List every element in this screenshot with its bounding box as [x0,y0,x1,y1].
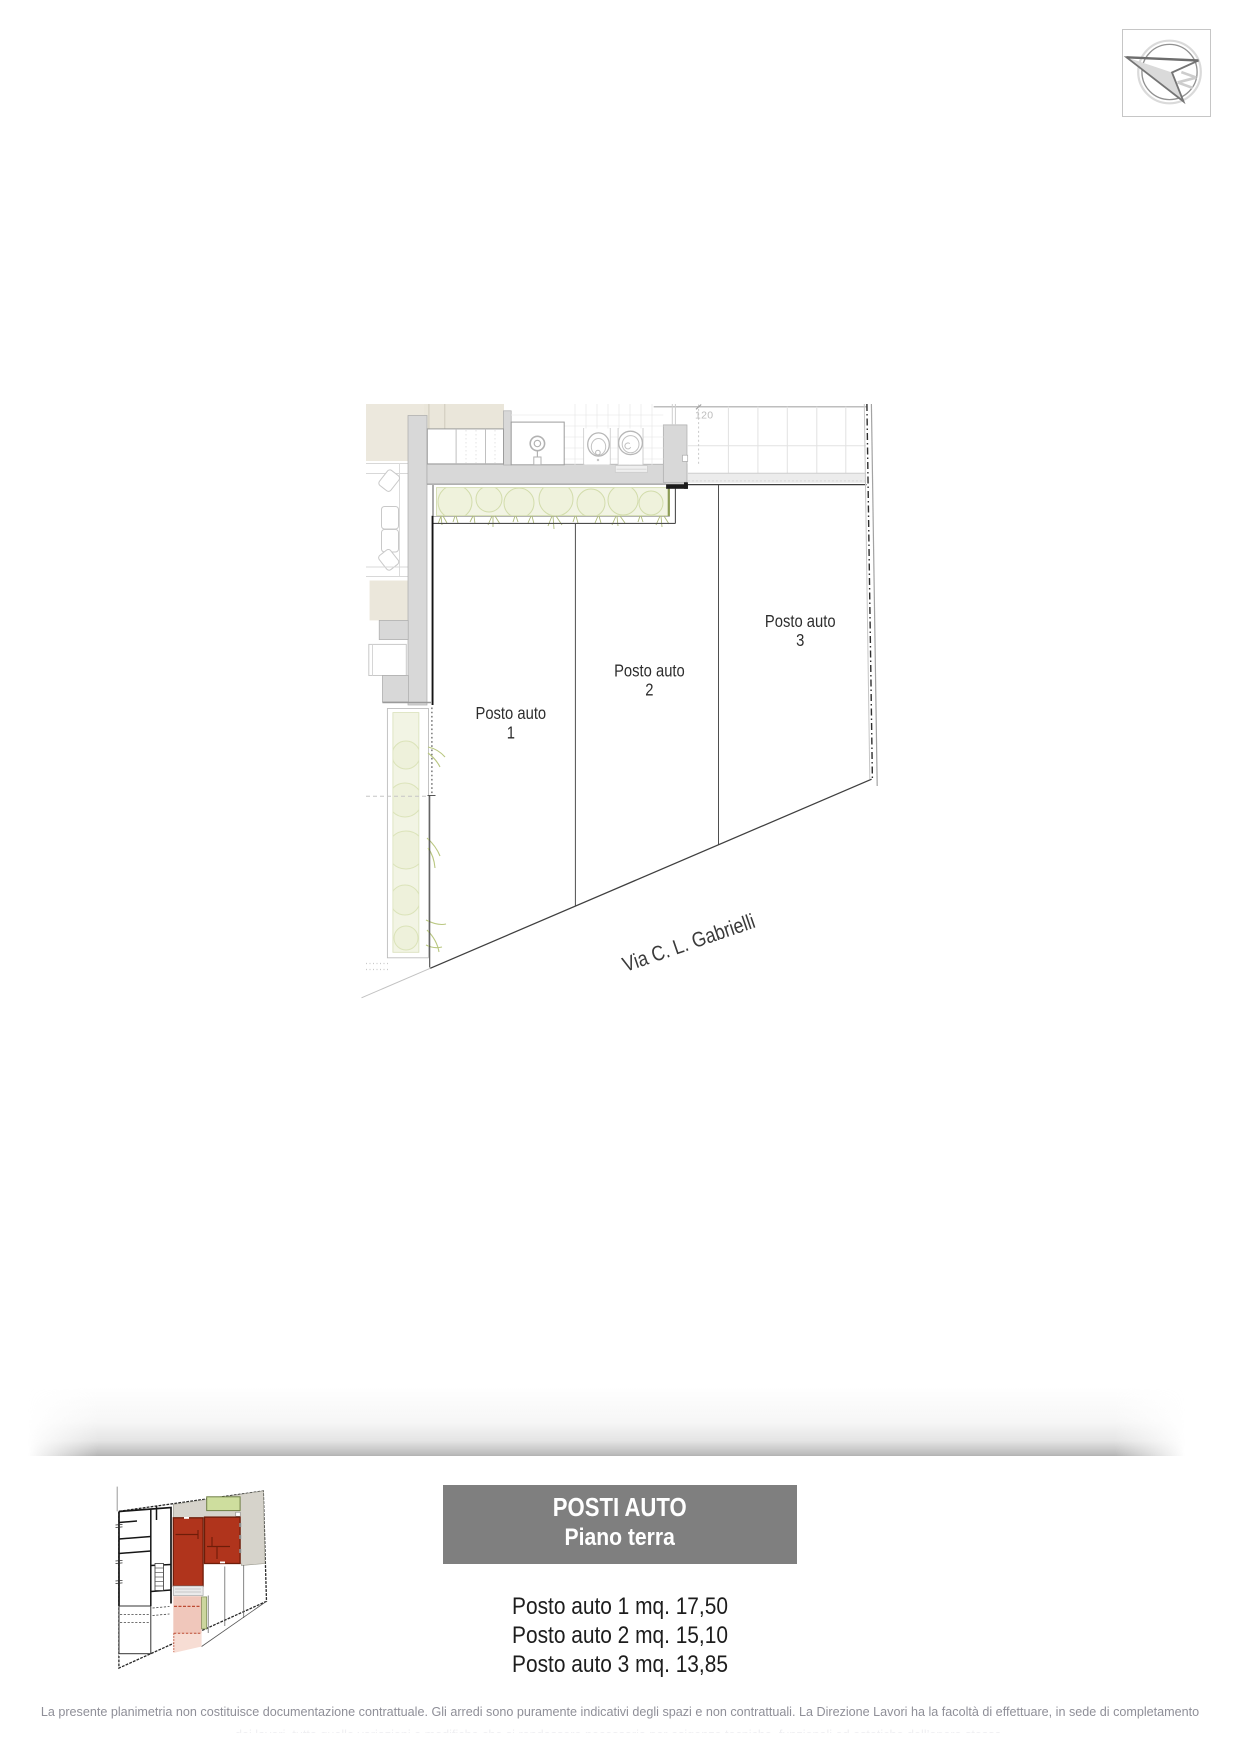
svg-text:Via C. L. Gabrielli: Via C. L. Gabrielli [620,910,759,977]
svg-text:Posto auto: Posto auto [475,704,546,723]
svg-text:1: 1 [507,723,515,742]
svg-text:3: 3 [796,631,804,650]
svg-text:Posto auto: Posto auto [765,612,836,631]
svg-text:Posto auto: Posto auto [614,661,685,680]
svg-text:2: 2 [645,681,653,700]
svg-text:120: 120 [695,410,713,422]
